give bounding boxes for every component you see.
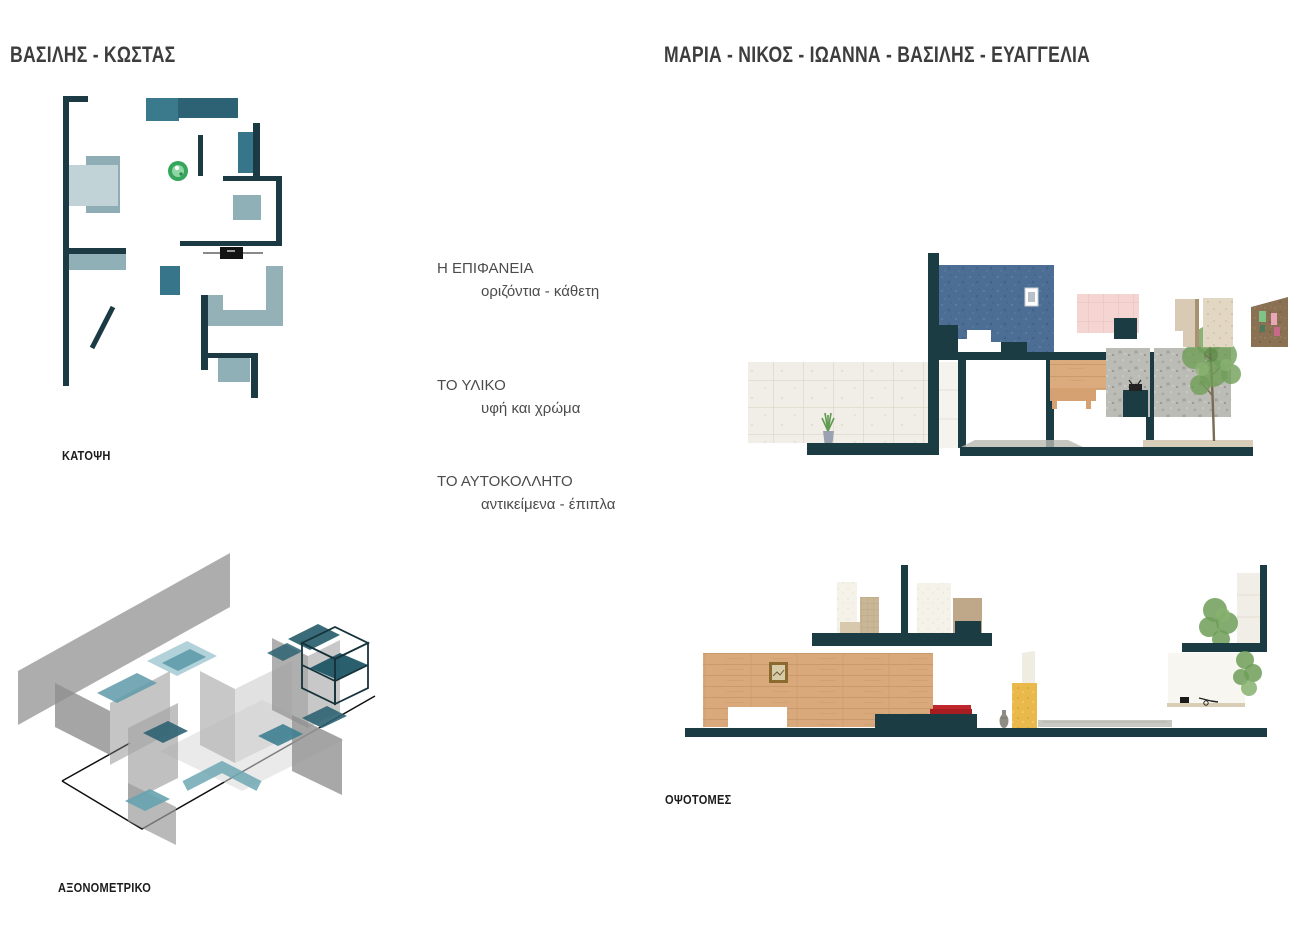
concept-material-subtitle: υφή και χρώμα <box>437 398 580 421</box>
pinboard-icon <box>1251 297 1288 347</box>
concept-sticker: ΤΟ ΑΥΤΟΚΟΛΛΗΤΟ αντικείμενα - έπιπλα <box>437 471 615 516</box>
red-books-icon <box>930 705 972 714</box>
sectionB-yellow-block-group <box>1000 651 1038 728</box>
concept-sticker-subtitle: αντικείμενα - έπιπλα <box>437 494 615 517</box>
concept-surface-subtitle: οριζόντια - κάθετη <box>437 281 599 304</box>
axonometric-drawing <box>10 543 400 863</box>
plan-plant-icon <box>168 161 188 181</box>
concept-sticker-title: ΤΟ ΑΥΤΟΚΟΛΛΗΤΟ <box>437 471 615 494</box>
plan-furniture <box>68 98 283 382</box>
concept-material: ΤΟ ΥΛΙΚΟ υφή και χρώμα <box>437 375 580 420</box>
concept-surface: Η ΕΠΙΦΑΝΕΙΑ οριζόντια - κάθετη <box>437 258 599 303</box>
sectionB-right-wing <box>1167 565 1267 707</box>
section-a-drawing <box>743 245 1298 460</box>
plan-tv-icon <box>203 247 263 259</box>
picture-frame-icon <box>1025 288 1038 306</box>
vase-icon <box>1000 710 1009 728</box>
floor-plan-drawing <box>58 93 303 403</box>
concept-surface-title: Η ΕΠΙΦΑΝΕΙΑ <box>437 258 599 281</box>
sections-label: ΟΨΟΤΟΜΕΣ <box>665 792 732 807</box>
team-title-right: ΜΑΡΙΑ - ΝΙΚΟΣ - ΙΩΑΝΝΑ - ΒΑΣΙΛΗΣ - ΕΥΑΓΓ… <box>664 42 1090 68</box>
axonometric-label: ΑΞΟΝΟΜΕΤΡΙΚΟ <box>58 880 151 895</box>
plan-label: ΚΑΤΟΨΗ <box>62 448 111 463</box>
team-title-left: ΒΑΣΙΛΗΣ - ΚΩΣΤΑΣ <box>10 42 175 68</box>
small-framed-picture-icon <box>769 662 788 683</box>
axon-gray-walls <box>18 553 344 845</box>
foliage-upper-icon <box>1199 598 1238 648</box>
wood-bed-icon <box>1050 360 1108 409</box>
sectionA-left-wing <box>748 362 939 455</box>
sectionB-upper-level <box>812 565 992 646</box>
concept-material-title: ΤΟ ΥΛΙΚΟ <box>437 375 580 398</box>
section-b-drawing <box>675 555 1275 755</box>
